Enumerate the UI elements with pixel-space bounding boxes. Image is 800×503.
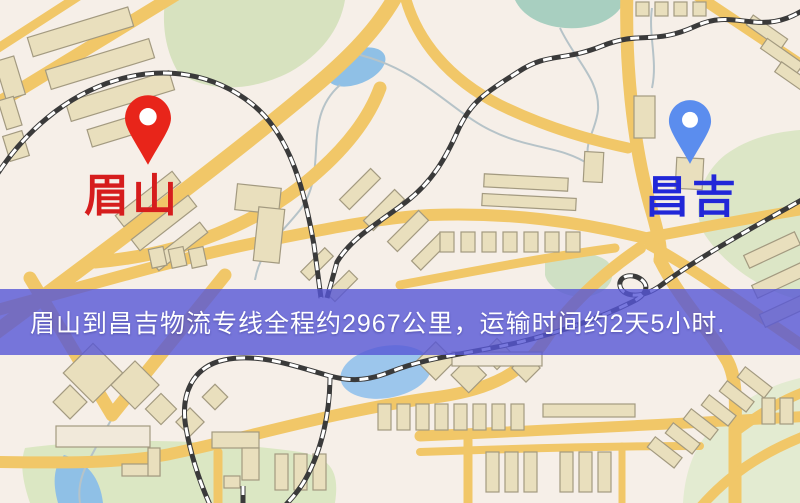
map-canvas [0,0,800,503]
destination-label: 昌吉 [645,176,739,220]
map-screenshot: 眉山 昌吉 眉山到昌吉物流专线全程约2967公里，运输时间约2天5小时. [0,0,800,503]
origin-marker [124,94,172,166]
destination-marker [668,98,712,166]
route-info-banner: 眉山到昌吉物流专线全程约2967公里，运输时间约2天5小时. [0,289,800,355]
route-info-text: 眉山到昌吉物流专线全程约2967公里，运输时间约2天5小时. [30,304,725,340]
origin-label: 眉山 [84,174,180,219]
red-location-pin-icon [124,94,172,166]
blue-location-pin-icon [668,98,712,166]
